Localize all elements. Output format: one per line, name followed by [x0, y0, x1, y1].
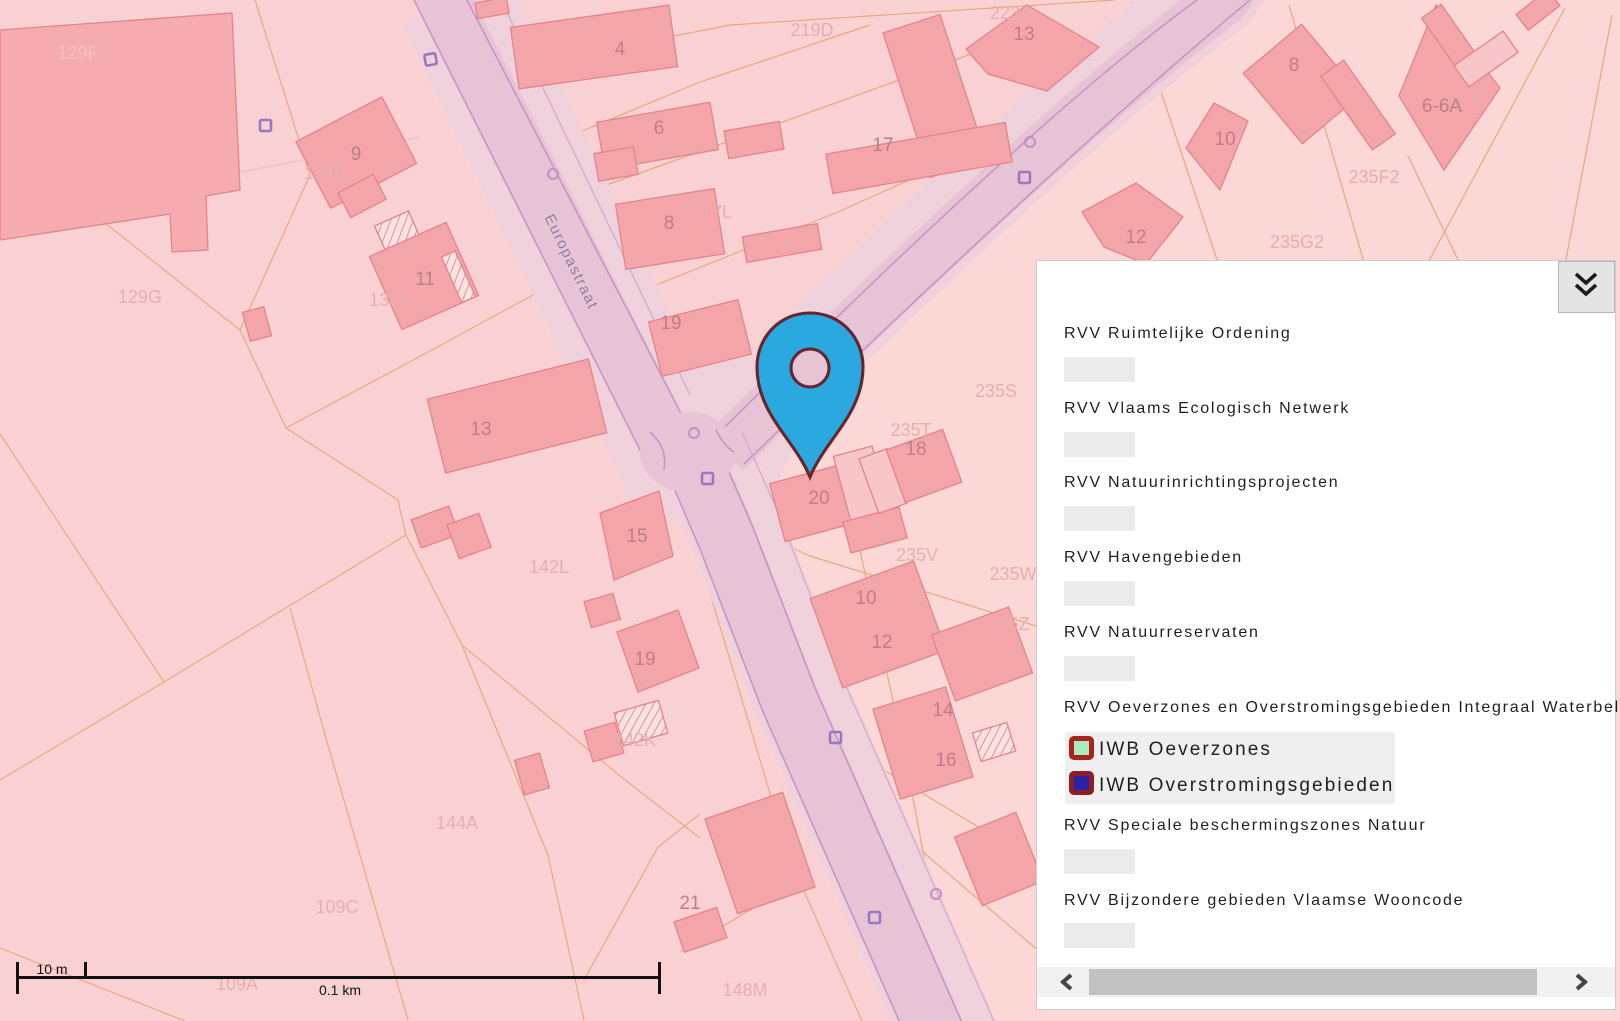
- svg-text:129G: 129G: [118, 287, 162, 307]
- svg-text:19: 19: [634, 649, 655, 670]
- svg-text:235F2: 235F2: [1348, 167, 1399, 187]
- svg-text:18: 18: [905, 439, 926, 460]
- svg-text:13: 13: [470, 419, 491, 440]
- svg-text:235Z: 235Z: [988, 614, 1029, 634]
- svg-text:21: 21: [679, 893, 700, 914]
- svg-text:11: 11: [415, 269, 435, 290]
- svg-text:148M: 148M: [722, 980, 767, 1000]
- svg-text:109C: 109C: [315, 897, 358, 917]
- svg-text:14: 14: [932, 700, 954, 721]
- svg-text:8: 8: [1289, 55, 1300, 76]
- svg-text:4: 4: [615, 39, 626, 60]
- svg-text:235V: 235V: [896, 545, 938, 565]
- svg-text:133A: 133A: [369, 290, 411, 310]
- svg-text:235T: 235T: [890, 420, 931, 440]
- svg-text:142L: 142L: [529, 557, 569, 577]
- svg-text:235G2: 235G2: [1270, 232, 1324, 252]
- svg-text:9: 9: [351, 144, 362, 165]
- svg-text:235S: 235S: [975, 381, 1017, 401]
- svg-text:20: 20: [808, 488, 829, 509]
- svg-text:8: 8: [664, 213, 675, 234]
- svg-text:217L: 217L: [692, 202, 732, 222]
- svg-text:17: 17: [872, 135, 893, 156]
- svg-text:235W: 235W: [989, 564, 1036, 584]
- svg-text:129F: 129F: [57, 43, 98, 63]
- svg-text:10: 10: [1214, 129, 1235, 150]
- svg-text:142K: 142K: [614, 730, 656, 750]
- svg-text:13: 13: [1013, 24, 1034, 45]
- svg-text:12: 12: [1125, 227, 1146, 248]
- svg-text:12: 12: [871, 632, 892, 653]
- svg-text:10 m: 10 m: [36, 961, 67, 977]
- svg-text:16: 16: [935, 750, 956, 771]
- svg-text:10: 10: [855, 588, 876, 609]
- svg-text:144A: 144A: [436, 813, 478, 833]
- svg-text:19: 19: [660, 313, 681, 334]
- svg-text:134B: 134B: [304, 163, 346, 183]
- svg-text:219D: 219D: [790, 20, 833, 40]
- svg-text:6-6A: 6-6A: [1422, 96, 1462, 117]
- svg-text:6: 6: [654, 118, 665, 139]
- svg-text:223A: 223A: [990, 3, 1032, 23]
- svg-text:0.1 km: 0.1 km: [319, 982, 361, 998]
- svg-text:15: 15: [626, 526, 647, 547]
